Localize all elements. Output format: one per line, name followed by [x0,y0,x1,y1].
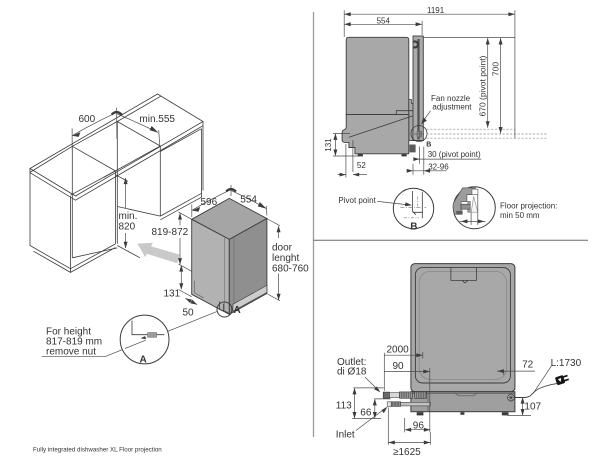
svg-text:remove nut: remove nut [46,347,96,358]
svg-text:30 (pivot point): 30 (pivot point) [428,150,481,159]
svg-text:di Ø18: di Ø18 [337,367,367,378]
svg-text:Fully integrated dishwasher XL: Fully integrated dishwasher XL Floor pro… [33,447,162,454]
svg-text:113: 113 [336,401,352,412]
svg-text:600: 600 [79,114,96,125]
svg-text:Floor projection:: Floor projection: [500,202,557,211]
svg-text:66: 66 [360,408,372,419]
svg-text:52: 52 [357,161,366,170]
svg-text:B: B [426,141,431,148]
svg-text:2000: 2000 [387,345,410,356]
svg-text:Fan nozzle: Fan nozzle [431,94,471,103]
svg-text:Inlet: Inlet [336,429,355,440]
svg-text:554: 554 [377,16,391,25]
svg-text:adjustment: adjustment [432,103,472,112]
svg-text:Pivot point: Pivot point [338,196,376,205]
svg-text:50: 50 [183,308,195,319]
svg-text:820: 820 [119,222,136,233]
svg-text:131: 131 [324,138,333,152]
svg-text:96: 96 [413,420,425,431]
svg-text:min.: min. [119,211,138,222]
svg-text:A: A [140,355,147,366]
svg-text:B: B [410,221,417,232]
svg-text:72: 72 [522,360,534,371]
svg-text:A: A [234,305,241,316]
svg-text:680-760: 680-760 [272,263,309,274]
svg-text:90: 90 [393,361,405,372]
svg-text:≥1625: ≥1625 [393,447,421,457]
svg-text:min 50 mm: min 50 mm [500,211,540,220]
svg-text:131: 131 [164,289,181,300]
svg-text:min.555: min.555 [139,114,175,125]
svg-text:32-96: 32-96 [428,162,449,171]
svg-text:819-872: 819-872 [152,227,189,238]
svg-text:700: 700 [490,62,500,76]
svg-text:1191: 1191 [427,6,445,15]
svg-text:L:1730: L:1730 [551,358,582,369]
svg-text:596: 596 [201,197,218,208]
svg-text:lenght: lenght [272,253,299,264]
svg-text:554: 554 [240,194,257,205]
svg-text:670 (pivot point): 670 (pivot point) [478,55,488,116]
svg-text:107: 107 [524,401,541,412]
svg-text:door: door [272,242,293,253]
